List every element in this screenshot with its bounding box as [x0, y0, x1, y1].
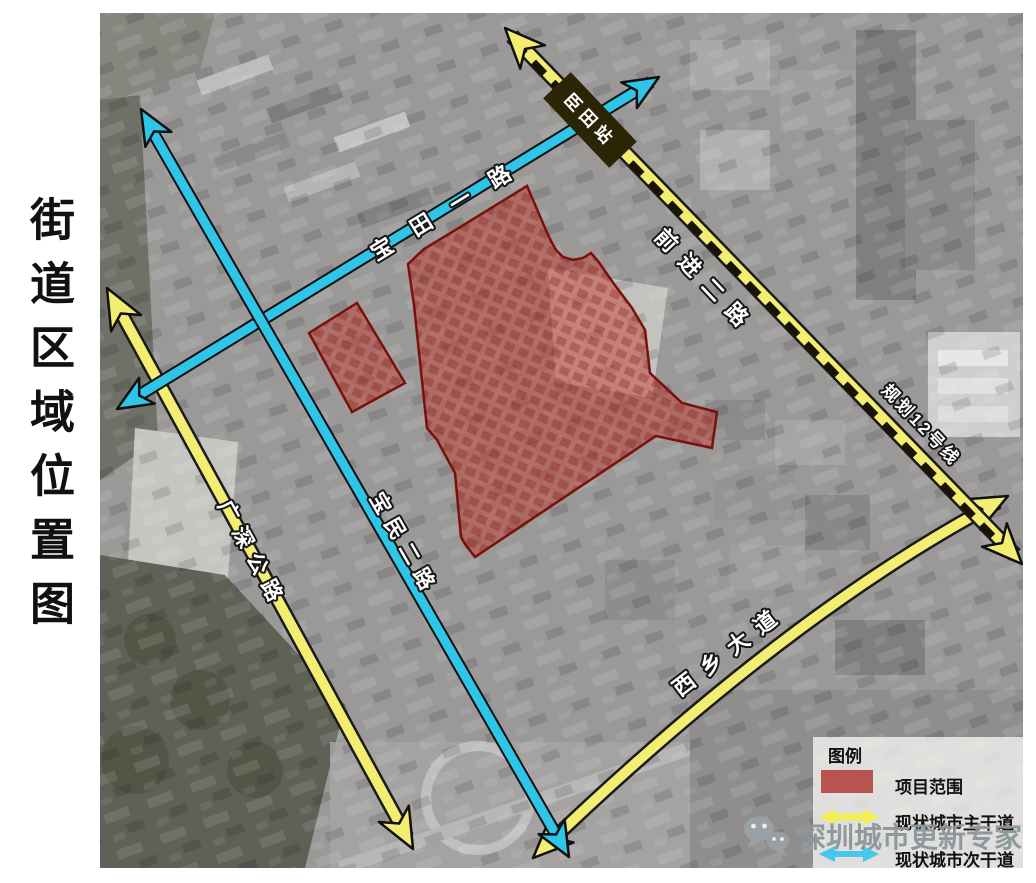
legend-swatch-project-area	[821, 770, 873, 793]
page-title: 街道区域位置图	[26, 196, 71, 644]
wechat-icon	[742, 813, 792, 859]
watermark-text: 深圳城市更新专家	[798, 816, 1022, 856]
legend-label-project-area: 项目范围	[895, 773, 963, 798]
watermark: 深圳城市更新专家	[742, 813, 1022, 859]
legend-title: 图例	[828, 742, 862, 767]
